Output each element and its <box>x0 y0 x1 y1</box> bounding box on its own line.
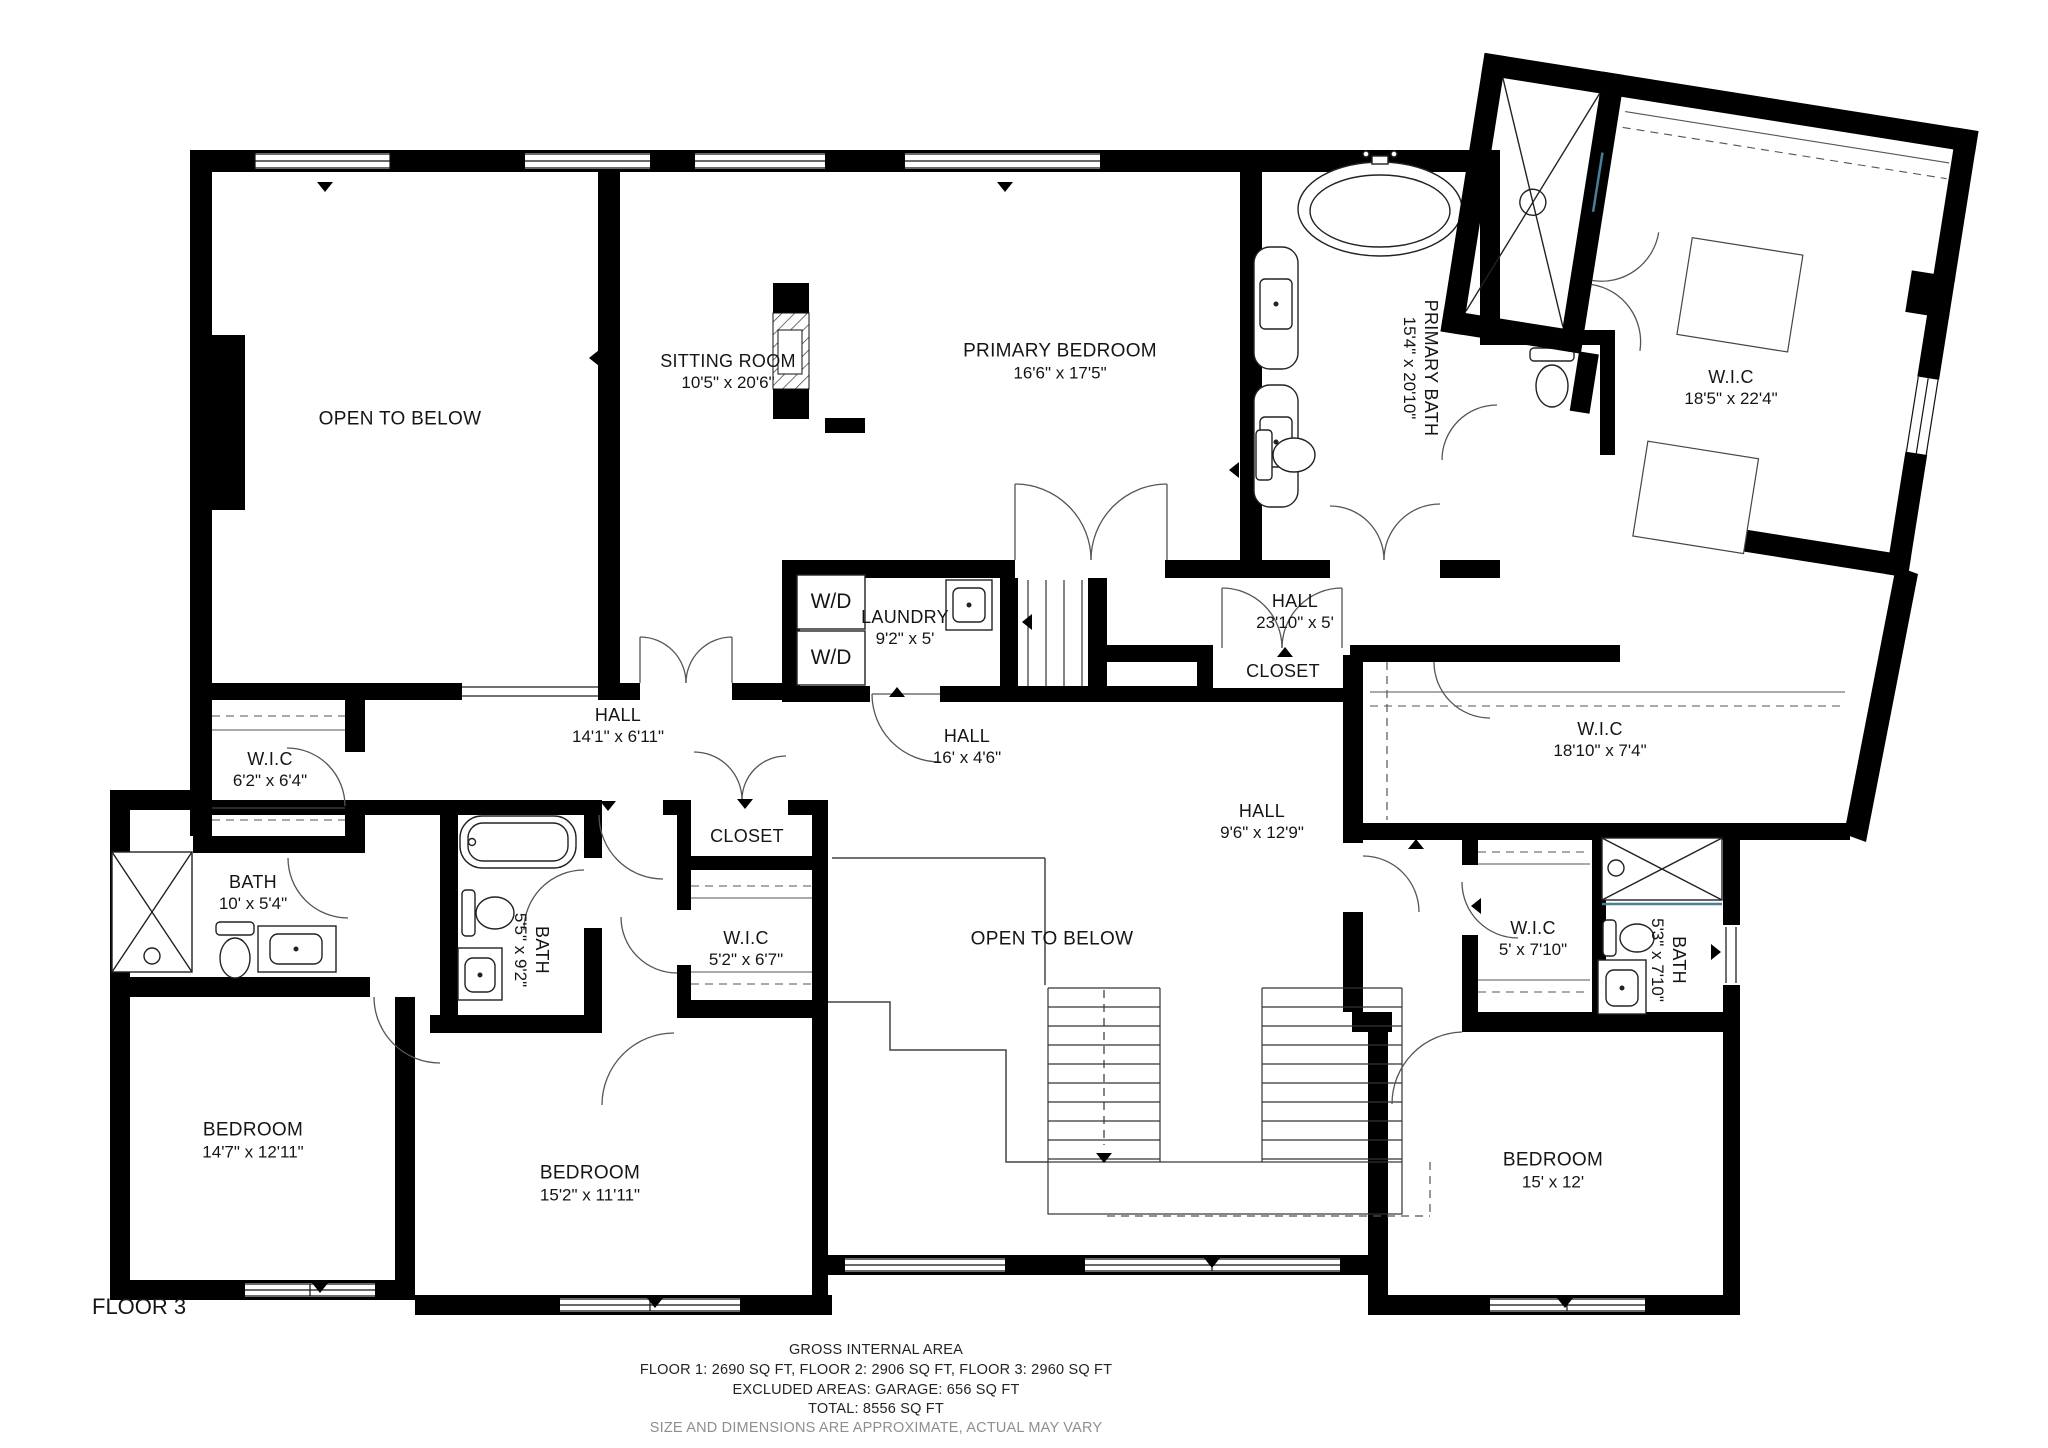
direction-arrow <box>1022 614 1032 630</box>
room-label-bedroom-left: BEDROOM14'7" x 12'11" <box>202 1119 303 1162</box>
window <box>245 1283 375 1297</box>
room-label-hall-16: HALL16' x 4'6" <box>933 726 1001 768</box>
room-label-laundry: LAUNDRY9'2" x 5' <box>861 607 949 649</box>
window <box>905 153 1100 169</box>
footer-floor-areas: FLOOR 1: 2690 SQ FT, FLOOR 2: 2906 SQ FT… <box>640 1362 1112 1378</box>
direction-arrow <box>1408 839 1424 849</box>
vanity-sink-icon <box>1598 960 1646 1014</box>
footer-excluded-areas: EXCLUDED AREAS: GARAGE: 656 SQ FT <box>732 1382 1019 1398</box>
room-label-closet-mid: CLOSET <box>710 826 784 848</box>
vanity-sink-icon <box>258 926 336 972</box>
toilet-icon <box>1530 348 1574 407</box>
room-label-hall-14: HALL14'1" x 6'11" <box>572 705 664 747</box>
room-label-bath-right: BATH5'3" x 7'10" <box>1647 918 1689 1002</box>
room-label-open-to-below-center: OPEN TO BELOW <box>971 929 1134 952</box>
direction-arrow <box>737 799 753 809</box>
toilet-icon <box>216 922 254 978</box>
footer-total-area: TOTAL: 8556 SQ FT <box>808 1401 944 1417</box>
room-label-bedroom-mid: BEDROOM15'2" x 11'11" <box>540 1162 640 1205</box>
room-label-hall-9: HALL9'6" x 12'9" <box>1220 801 1304 843</box>
direction-arrow <box>889 687 905 697</box>
direction-arrow <box>589 350 599 366</box>
window <box>1905 377 1939 456</box>
direction-arrow <box>1711 944 1721 960</box>
direction-arrow <box>1229 462 1239 478</box>
footer-gross-area-title: GROSS INTERNAL AREA <box>789 1342 963 1358</box>
washer-dryer-label: W/D <box>811 590 852 614</box>
room-label-wic-right: W.I.C5' x 7'10" <box>1499 918 1567 960</box>
floorplan-page: OPEN TO BELOW SITTING ROOM10'5" x 20'6" … <box>0 0 2048 1448</box>
walls <box>110 150 1918 1315</box>
room-label-bath-left: BATH10' x 5'4" <box>219 872 287 914</box>
shower-icon <box>112 852 192 972</box>
bathtub-icon <box>460 816 576 868</box>
direction-arrow <box>317 182 333 192</box>
floorplan-drawing <box>0 0 2048 1448</box>
washer-dryer-label: W/D <box>811 646 852 670</box>
room-label-wic-corridor: W.I.C18'10" x 7'4" <box>1553 719 1646 761</box>
toilet-icon <box>462 890 514 936</box>
opening-frame <box>1726 927 1736 983</box>
direction-arrow <box>997 182 1013 192</box>
room-label-bath-mid: BATH5'5" x 9'2" <box>510 913 552 987</box>
room-label-sitting-room: SITTING ROOM10'5" x 20'6" <box>660 351 796 393</box>
room-label-wic-left: W.I.C6'2" x 6'4" <box>233 749 307 791</box>
vanity-sink-icon <box>458 948 502 1000</box>
direction-arrow <box>1471 898 1481 914</box>
room-label-open-to-below-top: OPEN TO BELOW <box>319 409 482 432</box>
room-label-primary-bedroom: PRIMARY BEDROOM16'6" x 17'5" <box>963 340 1157 383</box>
room-label-wic-primary: W.I.C18'5" x 22'4" <box>1684 367 1777 409</box>
room-label-hall-upper: HALL23'10" x 5' <box>1256 591 1334 633</box>
vanity-sink-icon <box>1254 247 1298 369</box>
window <box>525 153 650 169</box>
room-label-bedroom-right: BEDROOM15' x 12' <box>1503 1149 1603 1192</box>
direction-arrow <box>1277 647 1293 657</box>
direction-arrow <box>600 801 616 811</box>
room-label-closet-upper: CLOSET <box>1246 661 1320 683</box>
footer-disclaimer: SIZE AND DIMENSIONS ARE APPROXIMATE, ACT… <box>650 1420 1103 1436</box>
floor-label: FLOOR 3 <box>92 1294 186 1320</box>
room-label-primary-bath: PRIMARY BATH15'4" x 20'10" <box>1399 300 1441 437</box>
window <box>845 1258 1005 1272</box>
shower-icon <box>1602 838 1722 904</box>
window <box>695 153 825 169</box>
room-label-wic-mid: W.I.C5'2" x 6'7" <box>709 928 783 970</box>
window <box>255 153 390 169</box>
laundry-sink-icon <box>946 580 992 630</box>
